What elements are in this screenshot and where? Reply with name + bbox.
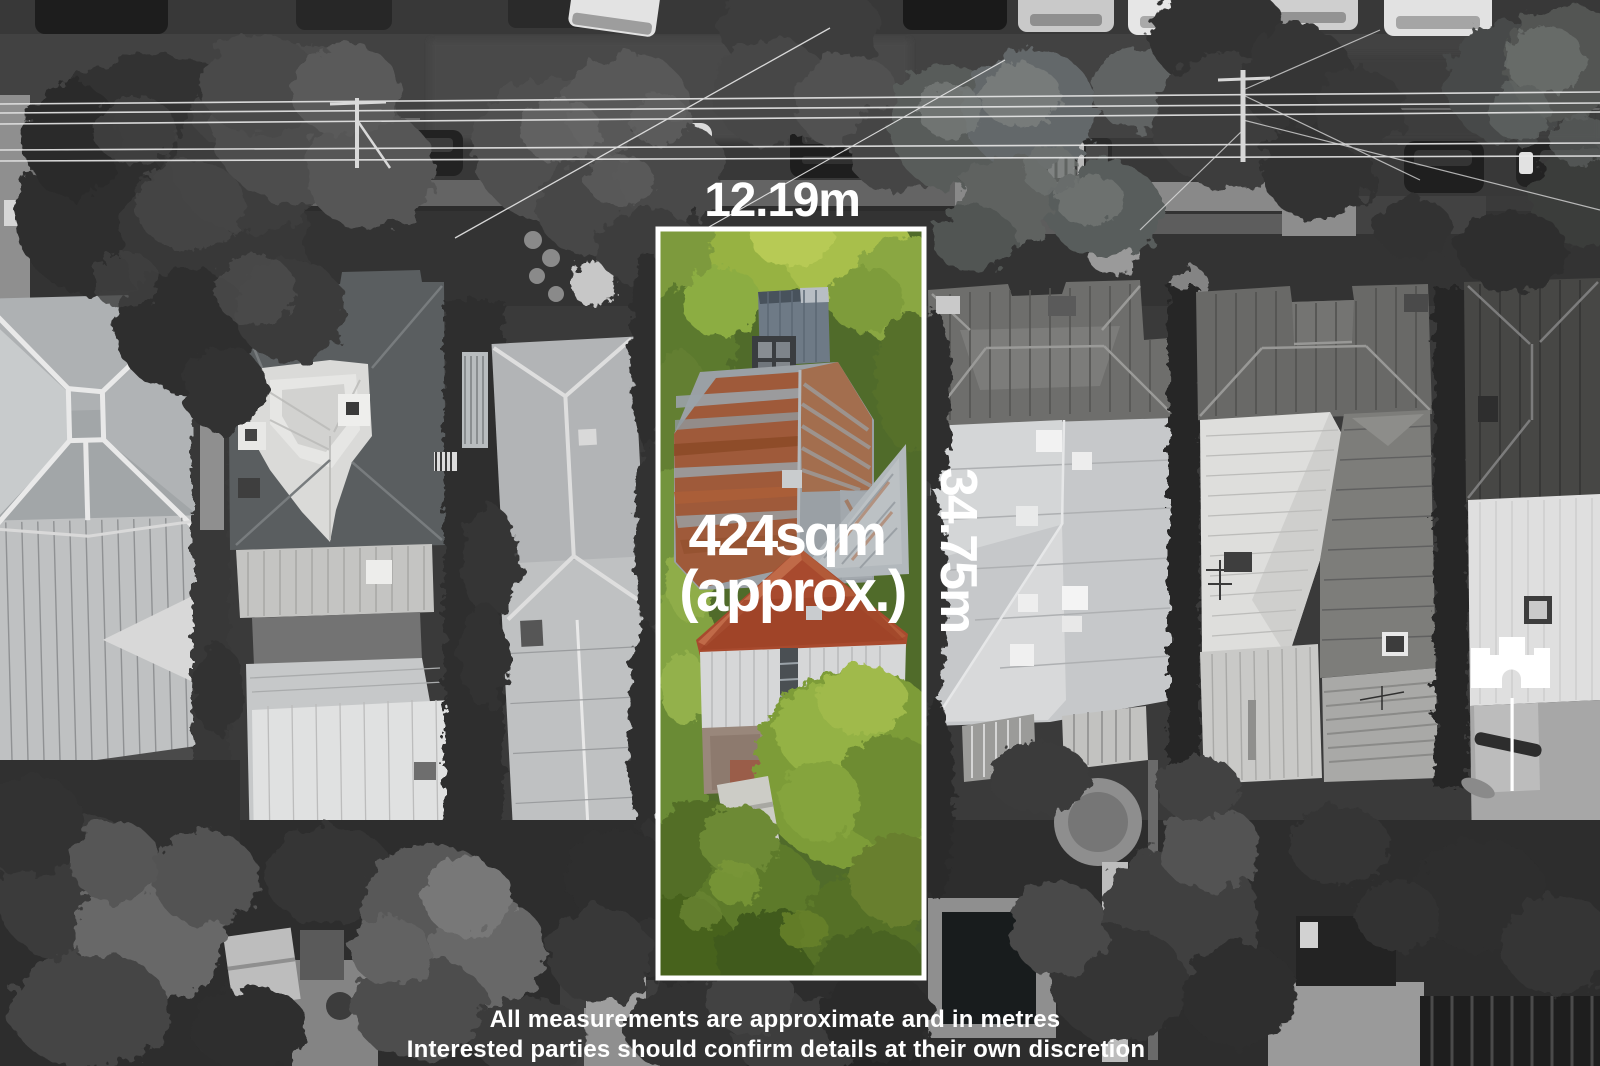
svg-text:(approx.): (approx.) [679, 559, 905, 624]
svg-text:Interested parties should conf: Interested parties should confirm detail… [407, 1036, 1145, 1063]
svg-text:34.75m: 34.75m [929, 468, 987, 632]
svg-text:All measurements are approxima: All measurements are approximate and in … [490, 1006, 1061, 1033]
svg-text:12.19m: 12.19m [704, 174, 860, 227]
